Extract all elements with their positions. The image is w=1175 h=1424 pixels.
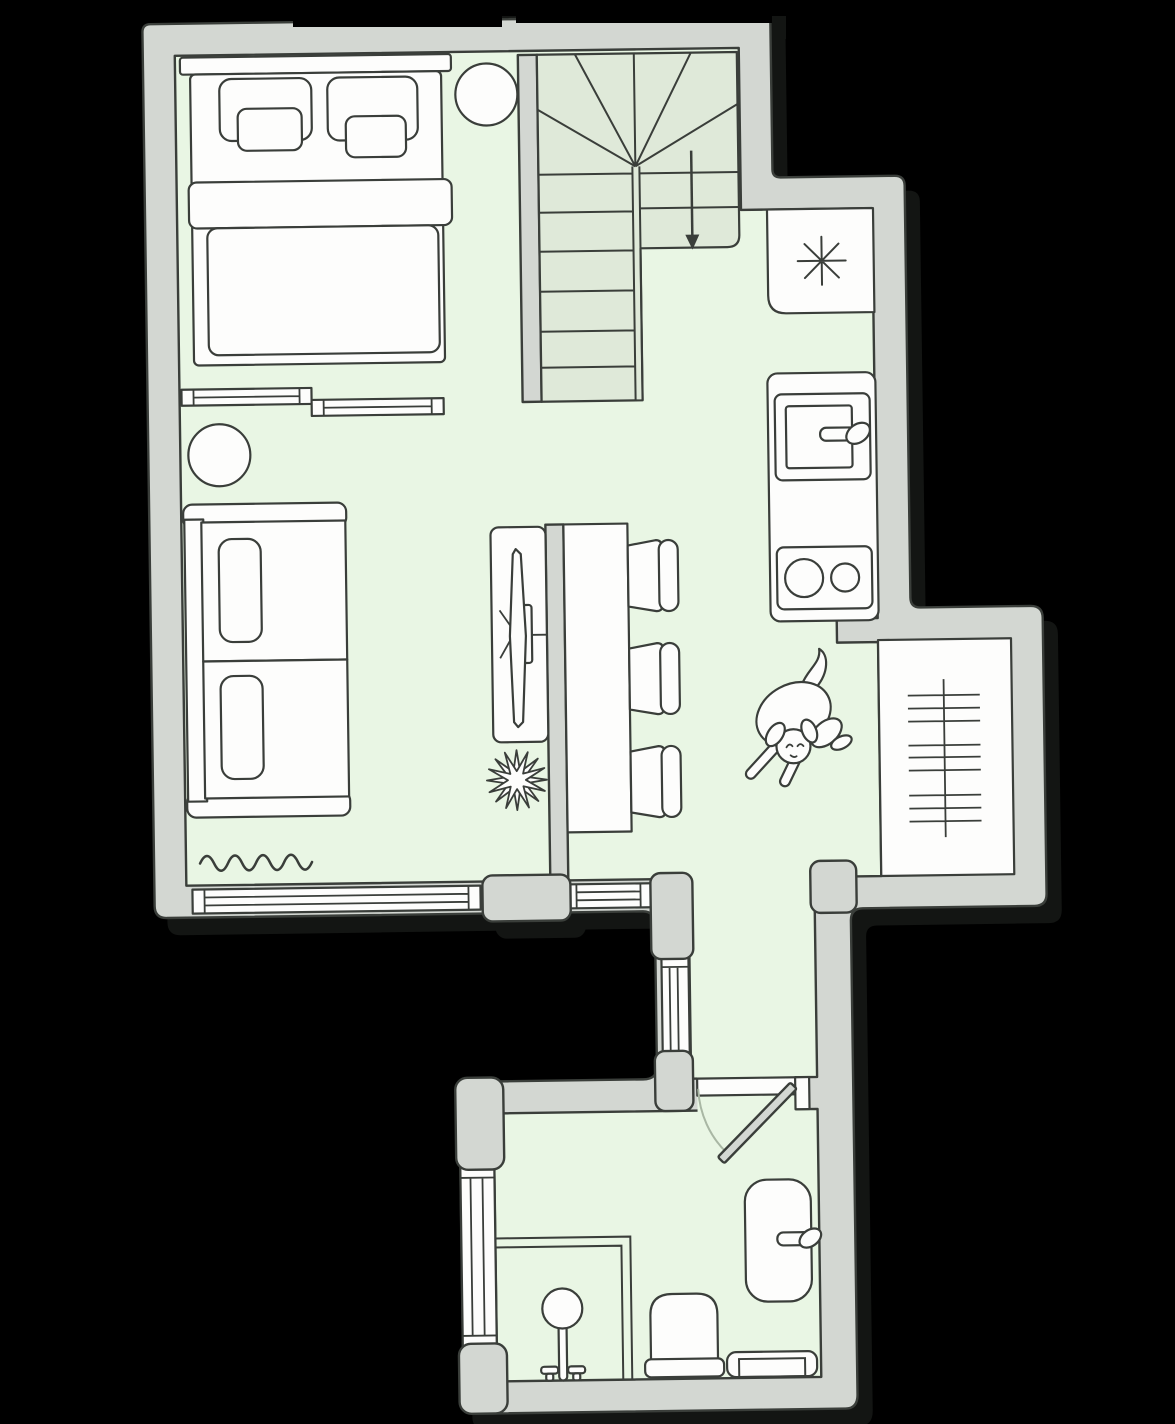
door-jamb [795,1077,809,1109]
dining-chair [629,643,680,715]
sliding-door-panel [181,388,311,406]
burner-small-icon [831,563,859,591]
window-living-right [564,883,652,908]
sliding-door-panel [312,398,444,416]
sofa-cushion [220,676,263,780]
adjacent-unit-wall [516,0,772,23]
pillow-small [346,116,407,158]
window-living-left [192,886,480,914]
wall-pillar [455,1077,504,1170]
round-nightstand [455,63,518,126]
wall-pillar [650,873,693,960]
wall-pillar [459,1343,508,1414]
toilet [644,1293,724,1377]
dining-table [563,524,631,833]
round-stool [188,424,251,487]
wall-pillar [655,1051,694,1112]
utility-niche [878,638,1014,876]
kitchen [765,208,879,621]
dining-chair [630,746,681,818]
towel-radiator [727,1351,817,1377]
kitchen-stove [777,546,873,609]
sofa-cushion [219,539,262,643]
living-area [183,502,351,871]
blanket-band [189,179,453,229]
kitchen-sink [775,393,875,480]
wall-pillar [482,874,571,921]
wall-pillar [810,860,857,913]
double-bed [180,54,455,366]
window-bathroom [460,1165,497,1349]
adjacent-unit-wall [293,0,502,27]
pillow-small [238,108,303,151]
tv-desk [490,527,548,743]
sofa [183,502,350,817]
floor-plan [0,0,1175,1424]
refrigerator-asterisk-icon [797,236,846,285]
burner-large-icon [785,559,824,598]
dining-chair [628,540,679,612]
duvet [207,225,440,355]
plan-rotated [142,12,1053,1418]
